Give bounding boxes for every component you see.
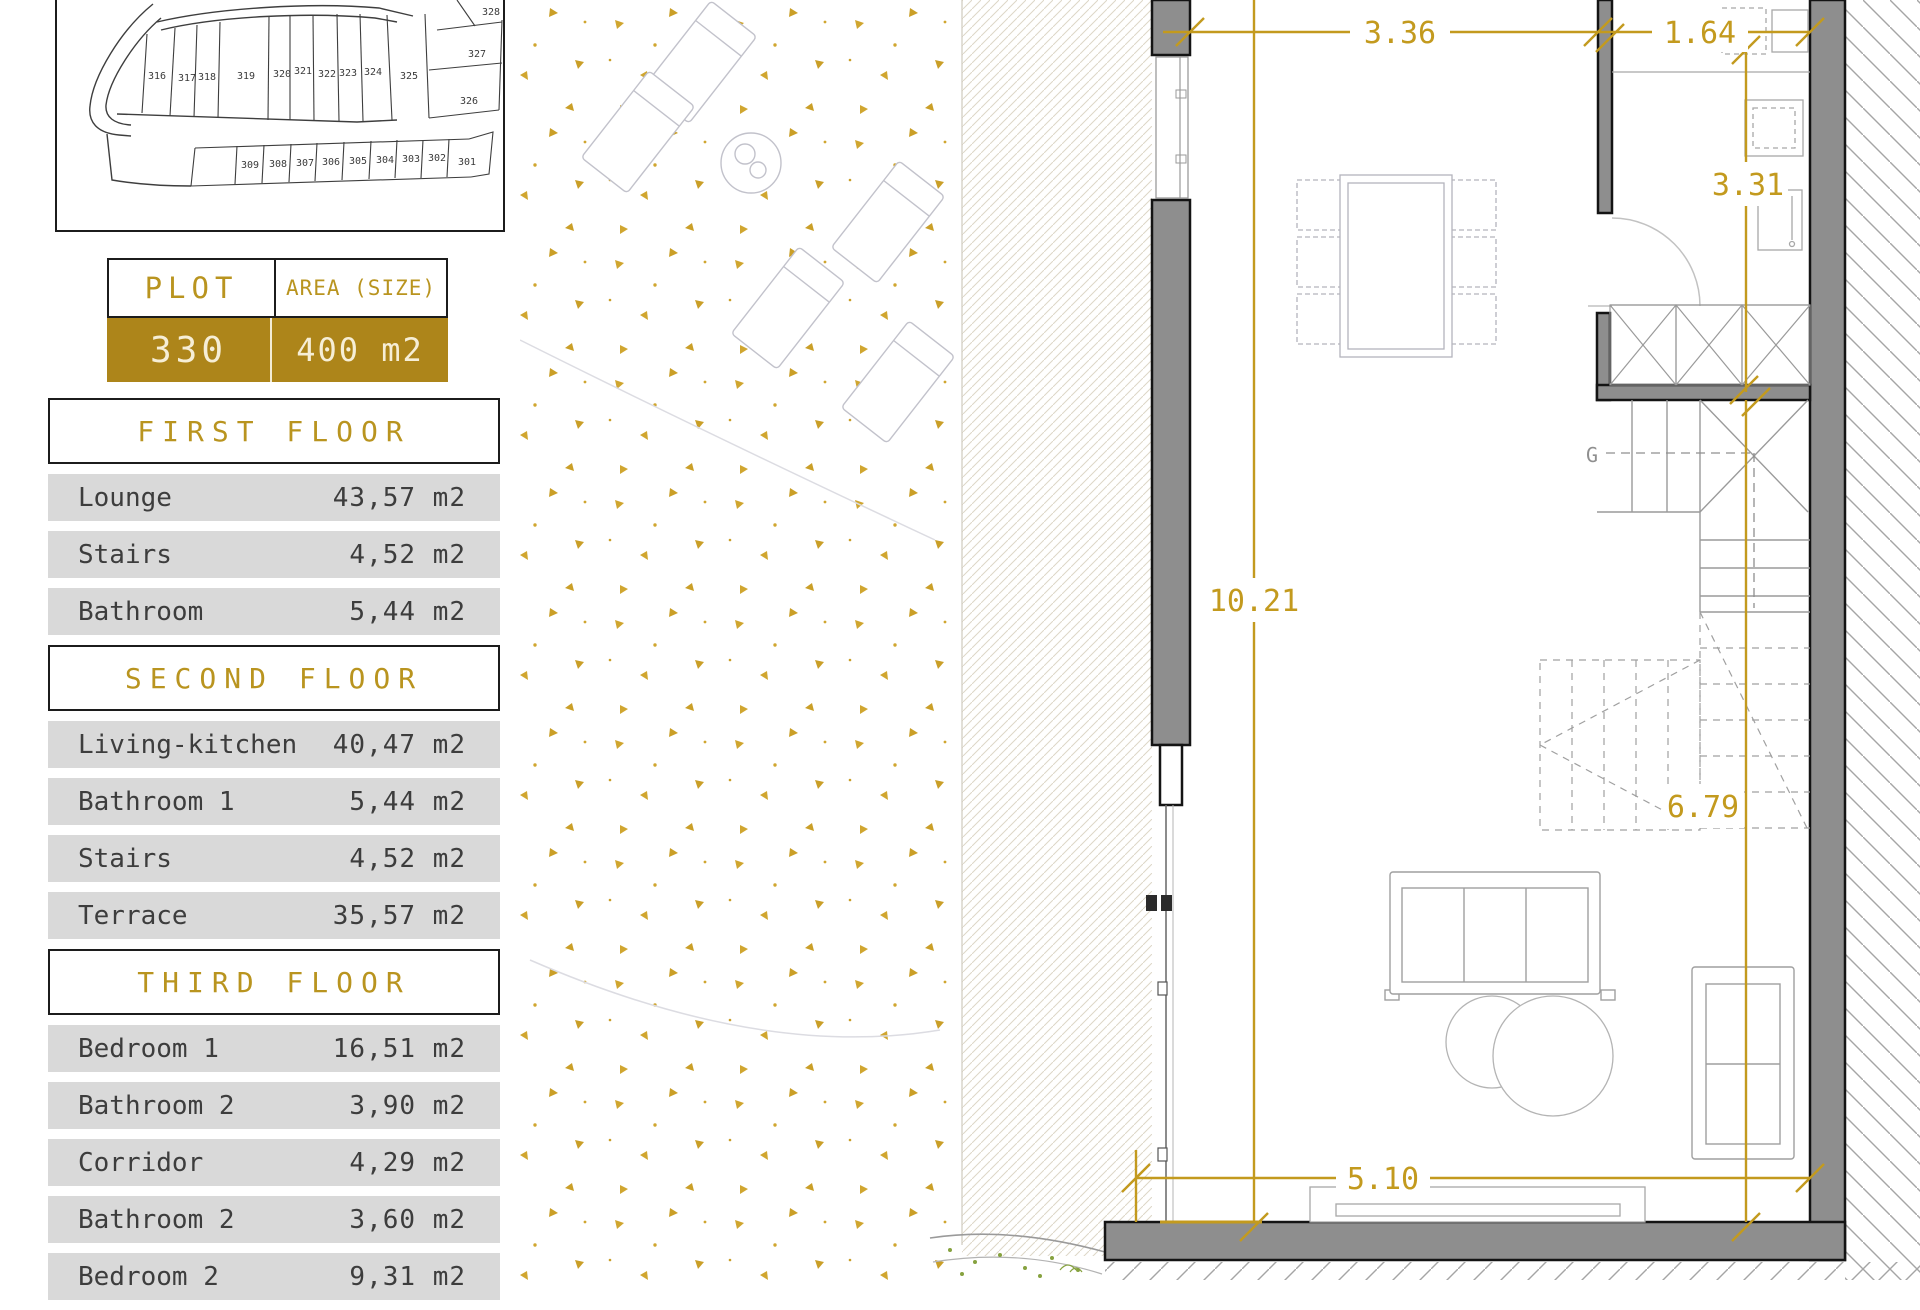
floors-list: FIRST FLOOR Lounge 43,57 m2 Stairs 4,52 … bbox=[48, 398, 500, 1310]
plot-label: 319 bbox=[237, 71, 255, 82]
plot-header-cell: PLOT bbox=[109, 260, 276, 316]
room-label: Bathroom 2 bbox=[78, 1205, 235, 1235]
plot-label: 318 bbox=[198, 72, 216, 83]
room-row: Bathroom 2 3,90 m2 bbox=[48, 1082, 500, 1129]
plot-number: 330 bbox=[107, 318, 272, 382]
room-label: Living-kitchen bbox=[78, 730, 297, 760]
plot-label: 305 bbox=[349, 156, 367, 167]
room-area: 4,52 m2 bbox=[349, 844, 466, 874]
room-area: 43,57 m2 bbox=[333, 483, 466, 513]
site-plan-map: 316 317 318 319 320 321 322 323 324 325 … bbox=[55, 0, 505, 232]
dining-set bbox=[1297, 175, 1496, 357]
room-row: Living-kitchen 40,47 m2 bbox=[48, 721, 500, 768]
plot-label: 322 bbox=[318, 69, 336, 80]
dim-room-length: 10.21 bbox=[1209, 584, 1299, 619]
floor-section-title: FIRST FLOOR bbox=[48, 398, 500, 464]
plot-label: 308 bbox=[269, 159, 287, 170]
room-label: Bathroom bbox=[78, 597, 203, 627]
room-label: Bedroom 2 bbox=[78, 1262, 219, 1292]
dim-kitchen-depth: 3.31 bbox=[1712, 168, 1784, 203]
room-area: 3,90 m2 bbox=[349, 1091, 466, 1121]
plot-label: 316 bbox=[148, 71, 166, 82]
dim-stair-zone: 6.79 bbox=[1667, 790, 1739, 825]
room-area: 4,29 m2 bbox=[349, 1148, 466, 1178]
room-row: Bathroom 1 5,44 m2 bbox=[48, 778, 500, 825]
plot-label: 321 bbox=[294, 66, 312, 77]
site-plan-labels: 316 317 318 319 320 321 322 323 324 325 … bbox=[148, 7, 500, 171]
room-label: Stairs bbox=[78, 844, 172, 874]
site-plan-svg: 316 317 318 319 320 321 322 323 324 325 … bbox=[57, 0, 503, 230]
plot-label: 328 bbox=[482, 7, 500, 18]
sofa bbox=[1385, 872, 1615, 1000]
plot-label: 304 bbox=[376, 155, 394, 166]
dim-width-a: 3.36 bbox=[1364, 16, 1436, 51]
room-label: Corridor bbox=[78, 1148, 203, 1178]
dim-bottom-width: 5.10 bbox=[1347, 1162, 1419, 1197]
plot-label: 323 bbox=[339, 68, 357, 79]
room-row: Terrace 35,57 m2 bbox=[48, 892, 500, 939]
plot-label: 303 bbox=[402, 154, 420, 165]
closet bbox=[1610, 305, 1810, 385]
kitchen-door bbox=[1588, 218, 1700, 306]
plot-table-values: 330 400 m2 bbox=[107, 318, 448, 382]
plot-label: 326 bbox=[460, 96, 478, 107]
room-label: Stairs bbox=[78, 540, 172, 570]
plot-label: 302 bbox=[428, 153, 446, 164]
room-area: 9,31 m2 bbox=[349, 1262, 466, 1292]
plot-label: 325 bbox=[400, 71, 418, 82]
room-area: 16,51 m2 bbox=[333, 1034, 466, 1064]
plot-table-header: PLOT AREA (SIZE) bbox=[107, 258, 448, 318]
terrace-hatch-strip bbox=[962, 0, 1152, 1256]
floor-section-title: SECOND FLOOR bbox=[48, 645, 500, 711]
room-area: 5,44 m2 bbox=[349, 787, 466, 817]
room-area: 3,60 m2 bbox=[349, 1205, 466, 1235]
plot-label: 309 bbox=[241, 160, 259, 171]
room-area: 5,44 m2 bbox=[349, 597, 466, 627]
plot-label: 307 bbox=[296, 158, 314, 169]
plot-label: 301 bbox=[458, 157, 476, 168]
room-row: Bedroom 2 9,31 m2 bbox=[48, 1253, 500, 1300]
armchair bbox=[1692, 967, 1794, 1159]
room-label: Bathroom 2 bbox=[78, 1091, 235, 1121]
area-header-cell: AREA (SIZE) bbox=[276, 260, 446, 316]
plot-label: 306 bbox=[322, 157, 340, 168]
room-area: 4,52 m2 bbox=[349, 540, 466, 570]
room-row: Lounge 43,57 m2 bbox=[48, 474, 500, 521]
stairs bbox=[1597, 400, 1810, 612]
room-row: Corridor 4,29 m2 bbox=[48, 1139, 500, 1186]
plot-label: 317 bbox=[178, 73, 196, 84]
garden-table bbox=[721, 133, 781, 193]
room-row: Stairs 4,52 m2 bbox=[48, 531, 500, 578]
floor-section-title: THIRD FLOOR bbox=[48, 949, 500, 1015]
plot-area-size: 400 m2 bbox=[272, 318, 448, 382]
room-label: Lounge bbox=[78, 483, 172, 513]
plant-circles bbox=[1446, 996, 1613, 1116]
room-label: Terrace bbox=[78, 901, 188, 931]
room-area: 40,47 m2 bbox=[333, 730, 466, 760]
info-panel: 316 317 318 319 320 321 322 323 324 325 … bbox=[0, 0, 520, 1280]
room-row: Stairs 4,52 m2 bbox=[48, 835, 500, 882]
room-area: 35,57 m2 bbox=[333, 901, 466, 931]
dim-width-b: 1.64 bbox=[1664, 16, 1736, 51]
floor-plan-sheet: { "site_plan": { "labels": ["316","317",… bbox=[0, 0, 1920, 1280]
room-label: Bathroom 1 bbox=[78, 787, 235, 817]
room-row: Bedroom 1 16,51 m2 bbox=[48, 1025, 500, 1072]
plot-label: 324 bbox=[364, 67, 382, 78]
room-label: Bedroom 1 bbox=[78, 1034, 219, 1064]
stairs-walking-line bbox=[1606, 453, 1754, 608]
plot-area-table: PLOT AREA (SIZE) 330 400 m2 bbox=[107, 258, 448, 382]
room-row: Bathroom 2 3,60 m2 bbox=[48, 1196, 500, 1243]
plot-label: 320 bbox=[273, 69, 291, 80]
plot-label: 327 bbox=[468, 49, 486, 60]
room-row: Bathroom 5,44 m2 bbox=[48, 588, 500, 635]
stairs-direction-label: G bbox=[1586, 443, 1598, 467]
